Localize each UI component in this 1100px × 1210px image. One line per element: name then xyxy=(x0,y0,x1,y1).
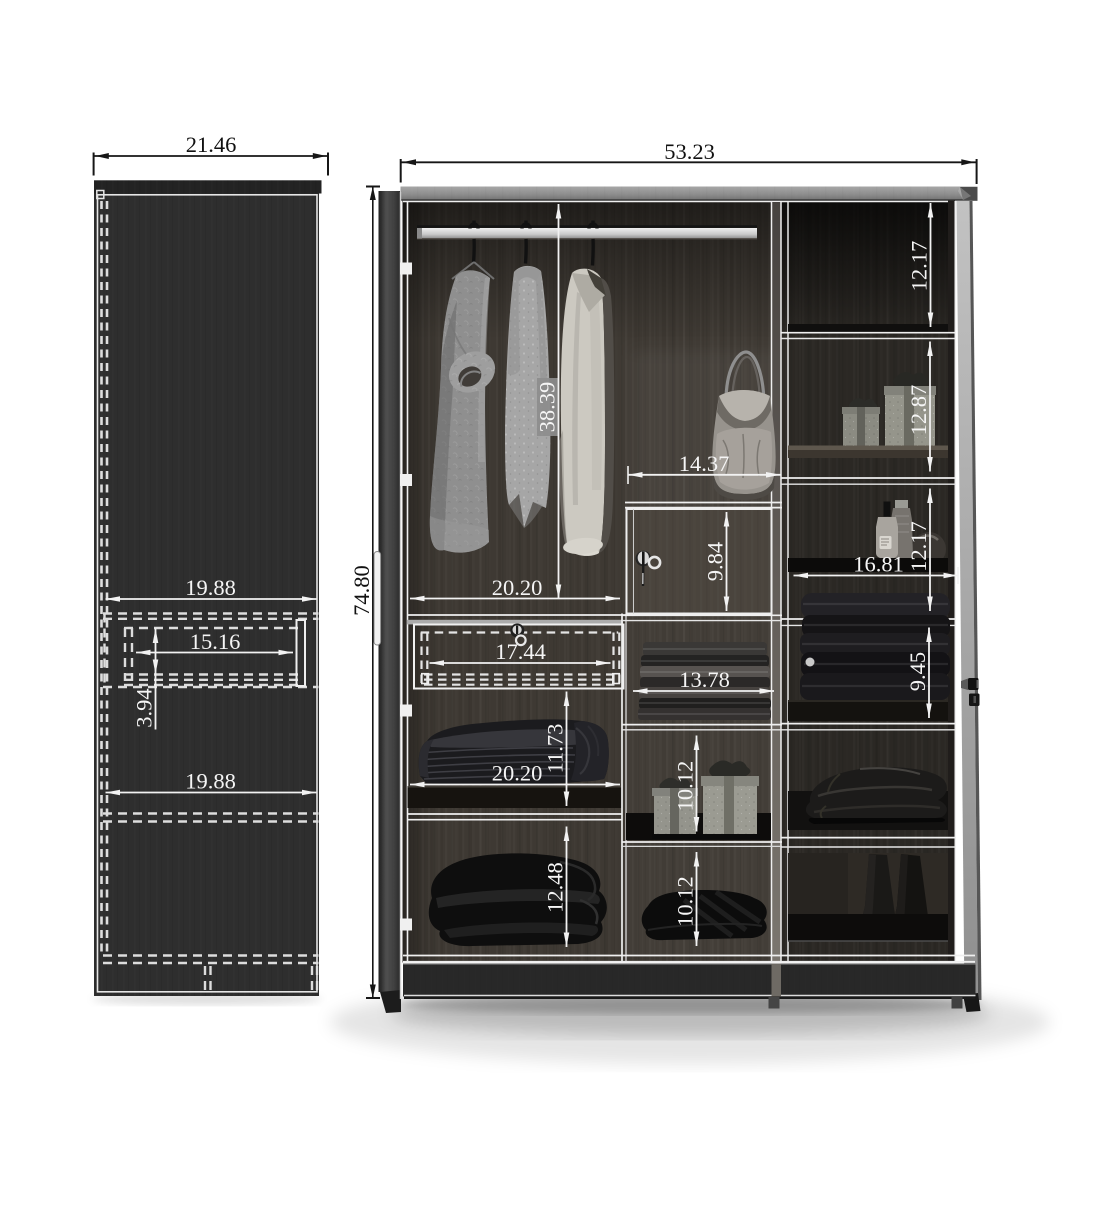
svg-text:38.39: 38.39 xyxy=(535,382,560,433)
svg-text:74.80: 74.80 xyxy=(349,565,374,616)
svg-text:12.17: 12.17 xyxy=(906,521,931,572)
svg-text:10.12: 10.12 xyxy=(673,761,698,812)
svg-text:21.46: 21.46 xyxy=(186,132,237,157)
svg-text:17.44: 17.44 xyxy=(495,639,546,664)
svg-text:20.20: 20.20 xyxy=(492,575,543,600)
svg-text:19.88: 19.88 xyxy=(185,769,236,794)
svg-text:3.94: 3.94 xyxy=(132,688,157,727)
svg-text:9.84: 9.84 xyxy=(703,542,728,581)
svg-text:9.45: 9.45 xyxy=(905,652,930,691)
svg-text:12.87: 12.87 xyxy=(906,385,931,436)
svg-text:12.17: 12.17 xyxy=(907,241,932,292)
svg-text:19.88: 19.88 xyxy=(185,575,236,600)
svg-text:14.37: 14.37 xyxy=(679,451,730,476)
svg-text:15.16: 15.16 xyxy=(190,629,241,654)
svg-text:53.23: 53.23 xyxy=(664,139,715,164)
svg-text:16.81: 16.81 xyxy=(853,552,904,577)
svg-text:11.73: 11.73 xyxy=(543,724,568,774)
svg-text:20.20: 20.20 xyxy=(492,761,543,786)
svg-text:12.48: 12.48 xyxy=(543,862,568,913)
svg-text:10.12: 10.12 xyxy=(673,876,698,927)
svg-text:13.78: 13.78 xyxy=(679,667,730,692)
